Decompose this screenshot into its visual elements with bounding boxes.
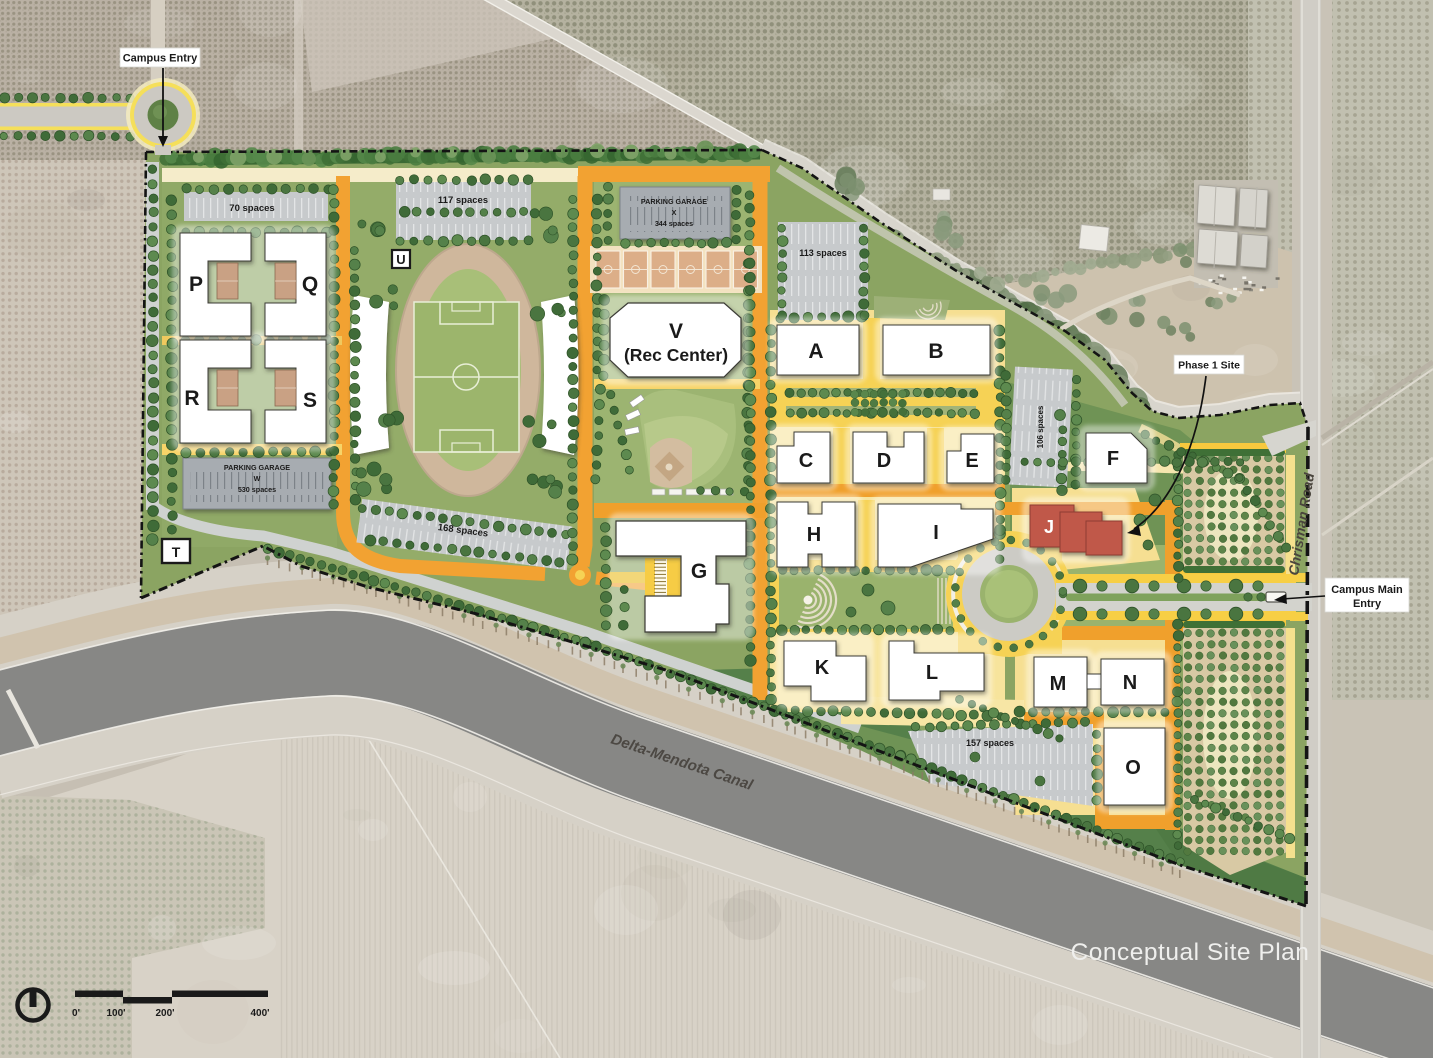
svg-text:B: B xyxy=(928,340,943,363)
svg-text:R: R xyxy=(184,387,199,410)
svg-text:117 spaces: 117 spaces xyxy=(438,195,488,206)
svg-text:Q: Q xyxy=(302,273,318,296)
svg-text:M: M xyxy=(1050,673,1067,695)
svg-text:157 spaces: 157 spaces xyxy=(966,738,1014,748)
svg-text:530 spaces: 530 spaces xyxy=(238,485,276,494)
svg-text:T: T xyxy=(172,544,181,560)
svg-text:(Rec Center): (Rec Center) xyxy=(624,345,728,365)
svg-text:200': 200' xyxy=(155,1008,174,1019)
svg-text:Conceptual Site Plan: Conceptual Site Plan xyxy=(1071,939,1310,966)
svg-text:U: U xyxy=(396,252,405,267)
svg-text:X: X xyxy=(672,208,677,217)
svg-text:K: K xyxy=(815,657,830,679)
svg-text:Campus Entry: Campus Entry xyxy=(123,53,198,65)
svg-text:A: A xyxy=(808,340,823,363)
svg-text:J: J xyxy=(1044,517,1054,537)
svg-text:PARKING GARAGE: PARKING GARAGE xyxy=(641,197,707,206)
svg-text:S: S xyxy=(303,389,317,412)
svg-text:100': 100' xyxy=(106,1008,125,1019)
svg-text:70 spaces: 70 spaces xyxy=(229,203,274,214)
svg-text:113 spaces: 113 spaces xyxy=(799,248,847,258)
svg-text:Entry: Entry xyxy=(1353,598,1382,610)
svg-text:N: N xyxy=(1123,672,1137,694)
svg-text:D: D xyxy=(877,450,891,472)
svg-text:O: O xyxy=(1125,757,1141,779)
svg-text:L: L xyxy=(926,662,938,684)
svg-text:G: G xyxy=(691,560,707,583)
svg-text:W: W xyxy=(254,474,261,483)
svg-text:I: I xyxy=(933,522,939,544)
svg-text:400': 400' xyxy=(250,1008,269,1019)
svg-text:E: E xyxy=(965,450,978,472)
svg-text:P: P xyxy=(189,273,203,296)
svg-text:C: C xyxy=(799,450,813,472)
svg-text:106 spaces: 106 spaces xyxy=(1036,405,1045,448)
svg-text:H: H xyxy=(807,524,821,546)
svg-text:Campus Main: Campus Main xyxy=(1331,584,1403,596)
svg-text:Phase 1 Site: Phase 1 Site xyxy=(1178,360,1240,372)
svg-text:0': 0' xyxy=(72,1008,80,1019)
svg-text:F: F xyxy=(1107,448,1119,470)
svg-text:V: V xyxy=(669,320,683,343)
svg-text:344 spaces: 344 spaces xyxy=(655,219,693,228)
svg-text:PARKING GARAGE: PARKING GARAGE xyxy=(224,463,290,472)
